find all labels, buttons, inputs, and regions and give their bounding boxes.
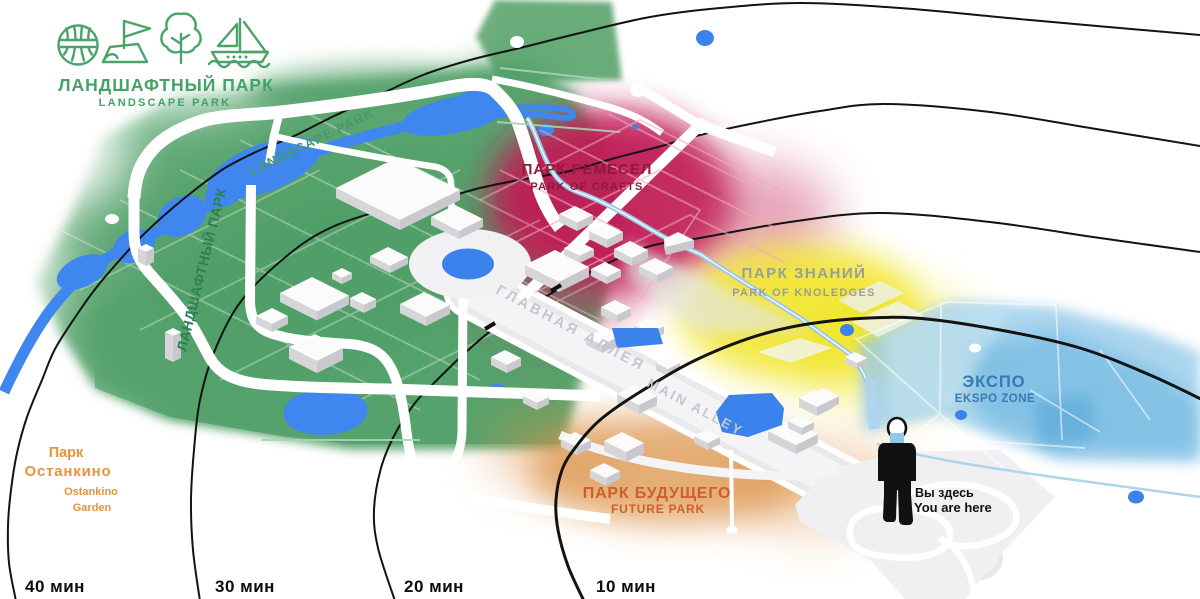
svg-text:ПАРК БУДУЩЕГО: ПАРК БУДУЩЕГО — [583, 485, 731, 502]
svg-text:ПАРК ЗНАНИЙ: ПАРК ЗНАНИЙ — [742, 264, 867, 282]
svg-text:30 мин: 30 мин — [215, 577, 275, 596]
svg-text:PARK OF KNOLEDGES: PARK OF KNOLEDGES — [732, 287, 876, 299]
svg-text:Останкино: Останкино — [25, 463, 112, 480]
svg-text:Вы здесь: Вы здесь — [915, 486, 974, 500]
svg-text:ЛАНДШАФТНЫЙ ПАРК: ЛАНДШАФТНЫЙ ПАРК — [58, 74, 274, 95]
svg-text:LANDSCAPE PARK: LANDSCAPE PARK — [99, 97, 232, 109]
svg-text:Garden: Garden — [73, 502, 112, 514]
svg-text:Парк: Парк — [49, 445, 84, 461]
svg-text:Ostankino: Ostankino — [64, 486, 118, 498]
svg-text:ПАРК РЕМЕСЕЛ: ПАРК РЕМЕСЕЛ — [522, 161, 653, 178]
svg-text:FUTURE PARK: FUTURE PARK — [611, 502, 705, 516]
svg-text:EKSPO ZONE: EKSPO ZONE — [955, 393, 1035, 405]
svg-text:10 мин: 10 мин — [596, 577, 656, 596]
svg-text:PARK OF CRAFTS: PARK OF CRAFTS — [530, 181, 643, 193]
svg-text:ЭКСПО: ЭКСПО — [962, 373, 1025, 391]
svg-text:20 мин: 20 мин — [404, 577, 464, 596]
svg-text:You are here: You are here — [914, 500, 992, 515]
svg-text:40 мин: 40 мин — [25, 577, 85, 596]
